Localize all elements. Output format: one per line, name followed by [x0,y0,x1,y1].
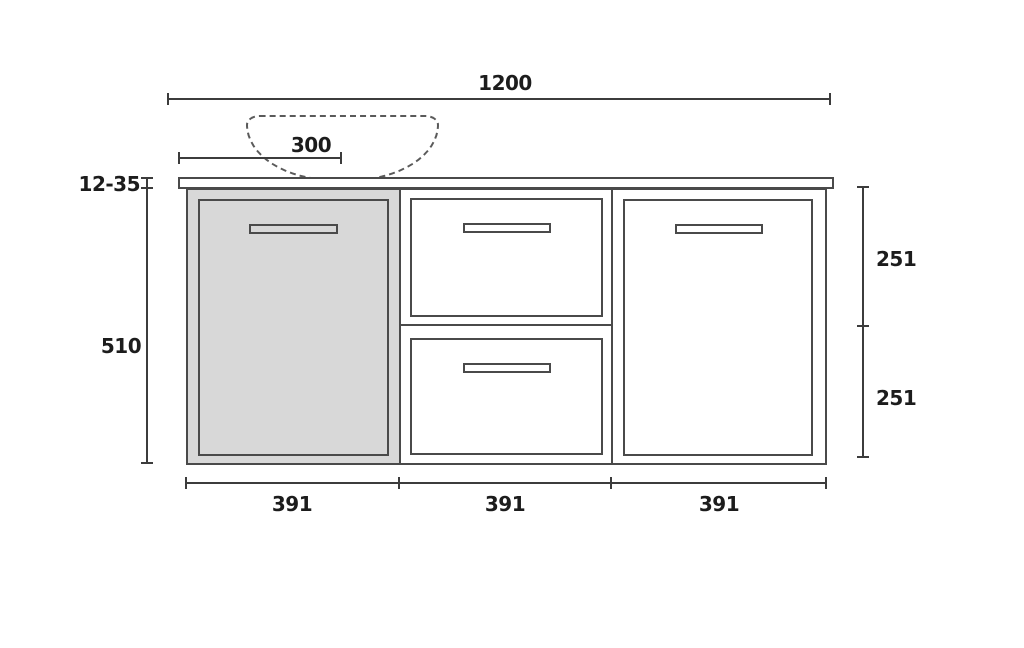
vanity-elevation-drawing: 1200 300 12-35 510 251 251 [0,0,1024,648]
drawer-divider [400,324,612,326]
dim-tick [610,477,612,489]
dim-tick [829,93,831,105]
dim-tick [857,186,869,188]
dim-label-countertop-thickness: 12-35 [40,174,140,194]
dim-label-right-bottom: 251 [876,388,916,408]
dim-tick [185,477,187,489]
basin-dashed-outline [246,115,439,181]
dim-label-bottom-left: 391 [242,494,342,514]
right-door-handle [675,224,763,234]
dim-line-right-height [862,187,864,458]
cabinet-body [186,188,827,465]
right-door-panel [623,199,813,456]
dim-tick [857,325,869,327]
section-divider-right [611,190,613,463]
dim-tick [167,93,169,105]
dim-line-basin-offset [179,157,342,159]
dim-label-total-width: 1200 [405,73,605,93]
dim-tick [141,462,153,464]
bottom-drawer-handle [463,363,551,373]
dim-tick [178,152,180,164]
left-door-handle [249,224,338,234]
dim-line-bottom-widths [186,482,827,484]
dim-label-bottom-middle: 391 [455,494,555,514]
dim-tick [825,477,827,489]
dim-tick [398,477,400,489]
dim-tick [141,177,153,179]
dim-label-cabinet-height: 510 [71,336,171,356]
dim-label-bottom-right: 391 [669,494,769,514]
dim-tick [340,152,342,164]
section-divider-left [399,190,401,463]
dim-line-total-width [168,98,831,100]
bottom-drawer-panel [410,338,603,455]
top-drawer-handle [463,223,551,233]
dim-tick [857,456,869,458]
dim-label-right-top: 251 [876,249,916,269]
top-drawer-panel [410,198,603,317]
dim-tick [141,187,153,189]
left-door-panel [198,199,389,456]
dim-line-left-height [146,178,148,464]
